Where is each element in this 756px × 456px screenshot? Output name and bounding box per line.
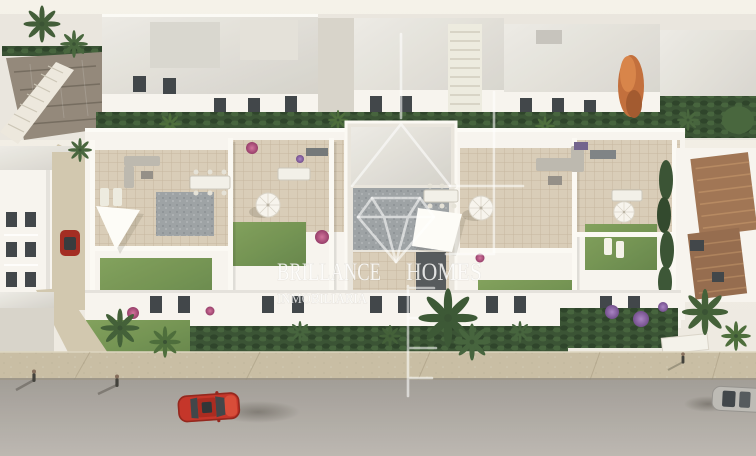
roof-unit xyxy=(536,30,562,44)
render-scene: BRILLANCE HOMES INMOBILIARIA xyxy=(0,0,756,456)
parasol xyxy=(469,196,493,220)
street-hedge xyxy=(190,326,568,352)
parasol xyxy=(614,202,634,222)
background-building xyxy=(102,14,318,124)
gravel-roof xyxy=(156,192,214,236)
palm-tree xyxy=(60,30,88,58)
parasol xyxy=(256,193,280,217)
road xyxy=(0,380,756,456)
watermark-brand-right: HOMES xyxy=(406,259,482,286)
silver-car xyxy=(712,386,756,413)
stair-gap xyxy=(318,18,354,122)
sidewalk xyxy=(0,352,756,380)
alley-red-car xyxy=(60,230,80,256)
aerial-render-image: BRILLANCE HOMES INMOBILIARIA xyxy=(0,0,756,456)
watermark-subtitle: INMOBILIARIA xyxy=(277,291,367,306)
street-level xyxy=(0,288,756,456)
palm-tree xyxy=(677,109,699,131)
watermark-brand-left: BRILLANCE xyxy=(277,259,381,286)
tree xyxy=(722,106,754,134)
background-building xyxy=(354,18,504,120)
street-hedge xyxy=(560,308,678,348)
palm-tree xyxy=(24,6,61,43)
